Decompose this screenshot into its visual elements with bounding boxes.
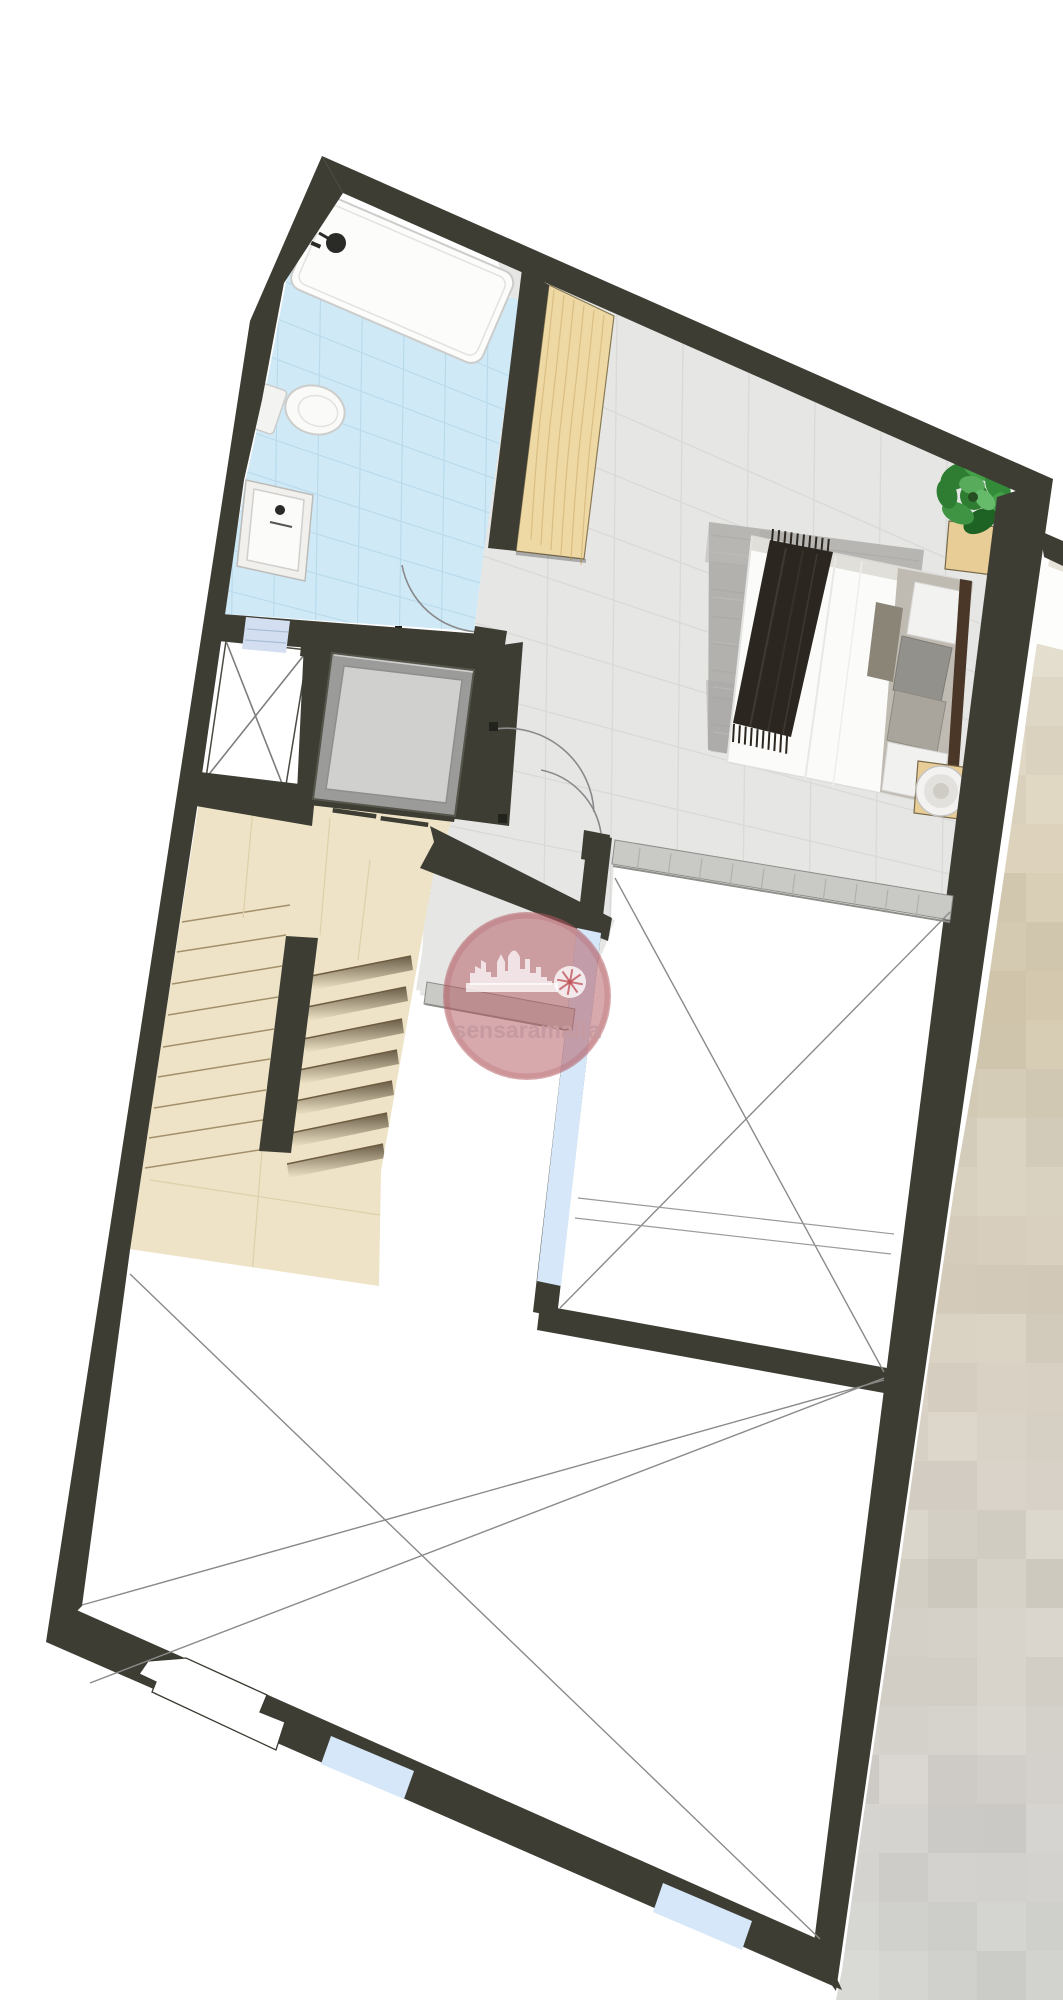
svg-text:sensaramalta: sensaramalta [453, 1017, 600, 1043]
